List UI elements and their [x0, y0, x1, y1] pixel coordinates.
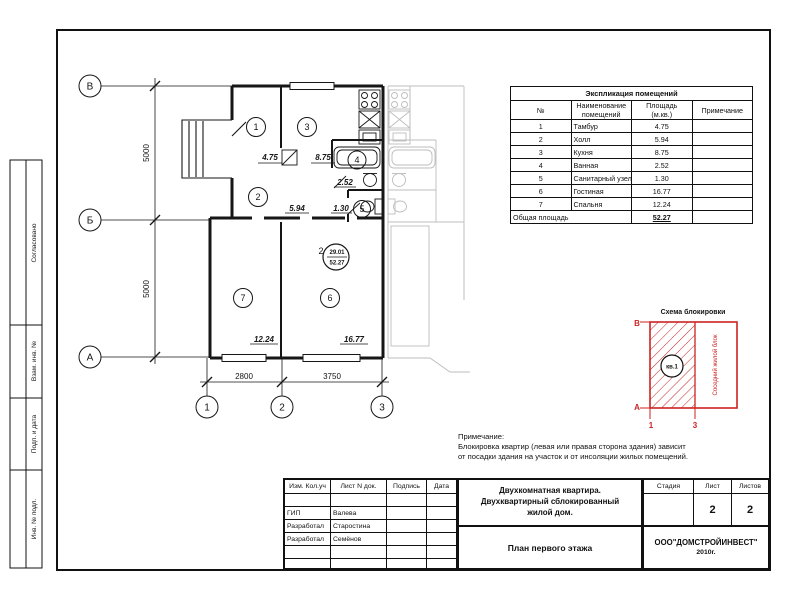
notes-line-2: от посадки здания на участок и от инсоля…: [458, 452, 772, 462]
room-1-area: 4.75: [261, 153, 278, 162]
tb-drawing-name: План первого этажа: [457, 527, 642, 568]
room-6-area: 16.77: [344, 335, 365, 344]
tb-col-izm: Изм. Кол.уч: [285, 480, 331, 494]
col-area: Площадь(м.кв.): [632, 101, 693, 120]
notes-line-1: Блокировка квартир (левая или правая сто…: [458, 442, 772, 452]
table-total-row: Общая площадь 52.27: [511, 211, 753, 224]
col-no: №: [511, 101, 572, 120]
dim-5000-upper: 5000: [142, 144, 151, 162]
scheme-axis-top: В: [634, 319, 640, 328]
table-title: Экспликация помещений: [511, 87, 753, 101]
marker-total-area: 52.27: [329, 261, 345, 267]
dim-5000-lower: 5000: [142, 280, 151, 298]
table-row: 5Санитарный узел1.30: [511, 172, 753, 185]
room-5-num: 5: [359, 204, 364, 214]
dimension-lines: [101, 78, 389, 396]
floor-plan-walls: [210, 86, 383, 358]
room-6-num: 6: [327, 293, 332, 303]
notes-label: Примечание:: [458, 432, 772, 442]
table-row: 4Ванная2.52: [511, 159, 753, 172]
windows: [222, 83, 360, 362]
room-7-num: 7: [240, 293, 245, 303]
room-1-num: 1: [253, 122, 258, 132]
scheme-title: Схема блокировки: [661, 308, 726, 316]
dim-2800: 2800: [235, 372, 253, 381]
axis-col-3: 3: [379, 403, 385, 414]
table-row: 3Кухня8.75: [511, 146, 753, 159]
blocking-scheme: [640, 322, 737, 419]
scheme-axis-bottom: А: [634, 403, 640, 412]
tb-sheet-value: 2: [694, 494, 732, 527]
room-5-area: 1.30: [333, 204, 349, 213]
tb-col-list: Лист N док.: [331, 480, 387, 494]
table-row: 6Гостиная16.77: [511, 185, 753, 198]
table-row: 1Тамбур4.75: [511, 120, 753, 133]
tb-stage-value: [642, 494, 694, 527]
room-4-num: 4: [354, 155, 359, 165]
axis-col-1: 1: [204, 403, 210, 414]
tb-name-gip: Валева: [331, 507, 387, 520]
tb-sheets-value: 2: [732, 494, 768, 527]
total-value: 52.27: [632, 211, 693, 224]
rooms-table: Экспликация помещений № Наименованиепоме…: [510, 86, 753, 224]
axis-bubbles: [79, 75, 393, 418]
col-name: Наименованиепомещений: [571, 101, 632, 120]
scheme-flat-label: кв.1: [666, 365, 678, 371]
col-note: Примечание: [692, 101, 753, 120]
tb-role-dev1: Разработал: [285, 520, 331, 533]
tb-company: ООО"ДОМСТРОЙИНВЕСТ" 2010г.: [642, 527, 768, 568]
scheme-neighbour-label: Соседний жилой блок: [712, 334, 719, 395]
room-7-area: 12.24: [254, 335, 275, 344]
strip-label-inv: Инв. № подл.: [31, 499, 38, 540]
tb-sheets-label: Листов: [732, 480, 768, 494]
scheme-axis-3: 3: [693, 421, 698, 430]
room-4-area: 2.52: [336, 178, 353, 187]
strip-label-vzam: Взам. инв. №: [31, 341, 38, 381]
axis-row-v: В: [87, 82, 94, 93]
room-3-num: 3: [304, 122, 309, 132]
marker-living-area: 29.01: [329, 250, 345, 256]
title-block: Изм. Кол.уч Лист N док. Подпись Дата ГИП…: [283, 478, 770, 570]
scheme-axis-1: 1: [649, 421, 654, 430]
tb-name-dev2: Семёнов: [331, 533, 387, 546]
tb-role-gip: ГИП: [285, 507, 331, 520]
notes-block: Примечание: Блокировка квартир (левая ил…: [458, 432, 772, 462]
tb-project-title: Двухкомнатная квартира. Двухквартирный с…: [457, 480, 642, 527]
room-2-num: 2: [255, 192, 260, 202]
tb-role-dev2: Разработал: [285, 533, 331, 546]
dim-3750: 3750: [323, 372, 341, 381]
tb-name-dev1: Старостина: [331, 520, 387, 533]
kitchen-stove-icon: [359, 90, 380, 109]
strip-label-approved: Согласовано: [31, 223, 38, 262]
marker-rooms-count: 2: [318, 246, 323, 256]
axis-col-2: 2: [279, 403, 285, 414]
axis-row-a: А: [87, 353, 94, 364]
tb-col-podpis: Подпись: [387, 480, 427, 494]
tb-col-data: Дата: [427, 480, 457, 494]
table-row: 7Спальня12.24: [511, 198, 753, 211]
neighbour-flat-outline: [388, 86, 470, 372]
axis-row-b: Б: [87, 216, 94, 227]
drawing-sheet: Согласовано Взам. инв. № Подп. и дата Ин…: [0, 0, 800, 600]
total-label: Общая площадь: [511, 211, 632, 224]
tb-stage-label: Стадия: [642, 480, 694, 494]
room-3-area: 8.75: [315, 153, 331, 162]
tb-sheet-label: Лист: [694, 480, 732, 494]
table-row: 2Холл5.94: [511, 133, 753, 146]
washbasin-icon: [363, 174, 377, 187]
room-2-area: 5.94: [289, 204, 305, 213]
strip-label-podp: Подп. и дата: [31, 414, 38, 453]
apartment-marker: 29.01 52.27 2: [318, 244, 349, 270]
entrance-porch: [182, 120, 246, 178]
